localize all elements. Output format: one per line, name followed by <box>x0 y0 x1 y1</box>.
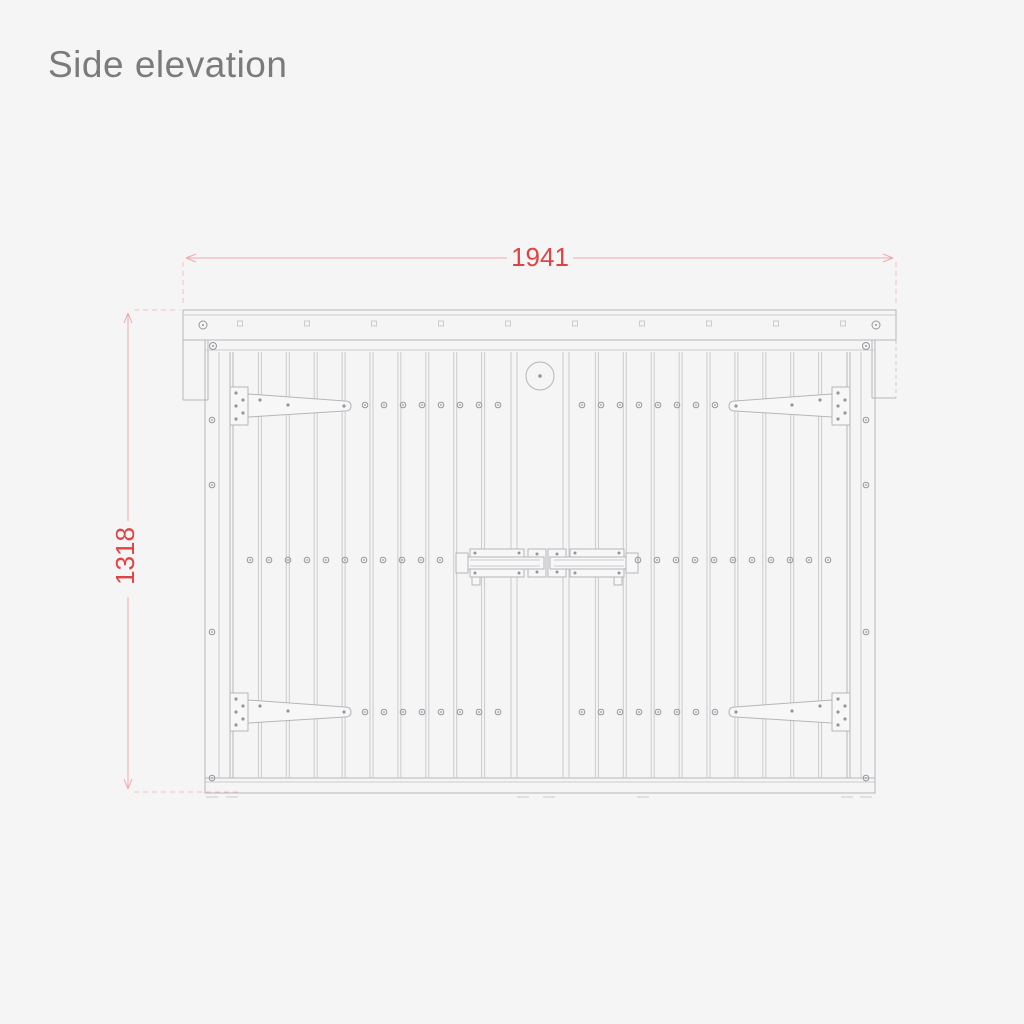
screw-dot <box>556 553 559 556</box>
hinge-strap <box>248 700 351 723</box>
screw-dot <box>714 711 716 713</box>
screw-dot <box>364 404 366 406</box>
screw-dot <box>675 559 677 561</box>
screw-dot <box>211 419 213 421</box>
screw-dot <box>618 552 621 555</box>
screw-dot <box>478 404 480 406</box>
screw-dot <box>211 631 213 633</box>
dim-arrow <box>124 313 128 323</box>
screw-dot <box>836 391 839 394</box>
screw-dot <box>258 398 261 401</box>
screw-dot <box>306 559 308 561</box>
dim-arrow <box>883 258 893 262</box>
screw-dot <box>818 398 821 401</box>
fascia-fixing <box>506 321 511 326</box>
latch-knob <box>456 553 468 573</box>
screw-dot <box>843 704 846 707</box>
screw-dot <box>657 404 659 406</box>
screw-dot <box>518 572 521 575</box>
screw-dot <box>732 559 734 561</box>
screw-dot <box>618 572 621 575</box>
dim-arrow <box>883 254 893 258</box>
screw-dot <box>790 709 793 712</box>
dim-arrow <box>128 313 132 323</box>
hinge-strap <box>248 394 351 417</box>
tee-hinge <box>230 693 351 731</box>
screw-dot <box>865 484 867 486</box>
screw-dot <box>241 704 244 707</box>
screw-dot <box>211 484 213 486</box>
screw-dot <box>342 404 345 407</box>
screw-dot <box>574 552 577 555</box>
screw-dot <box>713 559 715 561</box>
screw-dot <box>556 571 559 574</box>
hinge-plate <box>230 693 248 731</box>
screw-dot <box>497 711 499 713</box>
screw-dot <box>474 552 477 555</box>
fascia-fixing <box>707 321 712 326</box>
screw-dot <box>818 704 821 707</box>
screw-dot <box>734 710 737 713</box>
dim-arrow <box>186 258 196 262</box>
screw-dot <box>518 552 521 555</box>
screw-dot <box>619 404 621 406</box>
screw-dot <box>202 324 204 326</box>
screw-dot <box>600 711 602 713</box>
screw-dot <box>258 704 261 707</box>
screw-dot <box>843 398 846 401</box>
hinge-plate <box>832 387 850 425</box>
screw-dot <box>286 709 289 712</box>
screw-dot <box>234 417 237 420</box>
screw-dot <box>695 711 697 713</box>
screw-dot <box>234 697 237 700</box>
dim-arrow <box>128 779 132 789</box>
screw-dot <box>287 559 289 561</box>
screw-dot <box>808 559 810 561</box>
latch-handle <box>472 577 480 585</box>
screw-dot <box>234 723 237 726</box>
screw-dot <box>656 559 658 561</box>
screw-dot <box>843 411 846 414</box>
elevation-drawing: 1941 1318 <box>0 0 1024 1024</box>
hinge-strap <box>729 394 832 417</box>
screw-dot <box>474 572 477 575</box>
screw-dot <box>695 404 697 406</box>
screw-dot <box>211 777 213 779</box>
screw-dot <box>421 404 423 406</box>
screw-dot <box>402 404 404 406</box>
screw-dot <box>439 559 441 561</box>
screw-dot <box>789 559 791 561</box>
roof-fascia <box>183 310 896 400</box>
screw-dot <box>249 559 251 561</box>
dim-arrow <box>124 779 128 789</box>
fascia-fixing <box>439 321 444 326</box>
screw-dot <box>770 559 772 561</box>
screw-dot <box>241 398 244 401</box>
latch-knob <box>626 553 638 573</box>
screw-dot <box>875 324 877 326</box>
screw-dot <box>836 404 839 407</box>
screw-dot <box>383 404 385 406</box>
latch-bolt <box>461 557 544 569</box>
screw-dot <box>790 403 793 406</box>
screw-dot <box>325 559 327 561</box>
vent-centre-dot <box>538 374 542 378</box>
fascia-fixing <box>841 321 846 326</box>
screw-dot <box>286 403 289 406</box>
screw-dot <box>459 711 461 713</box>
screw-dot <box>865 777 867 779</box>
screw-dot <box>827 559 829 561</box>
fascia-fixing <box>305 321 310 326</box>
screw-dot <box>865 631 867 633</box>
screw-dot <box>459 404 461 406</box>
screw-dot <box>581 711 583 713</box>
screw-dot <box>619 711 621 713</box>
screw-dot <box>694 559 696 561</box>
screw-dot <box>536 553 539 556</box>
screw-dot <box>440 404 442 406</box>
fascia-fixing <box>372 321 377 326</box>
screw-dot <box>401 559 403 561</box>
screw-dot <box>638 711 640 713</box>
screw-dot <box>364 711 366 713</box>
screw-dot <box>497 404 499 406</box>
screw-dot <box>865 419 867 421</box>
barrel-bolt-latch <box>548 549 638 585</box>
screw-dot <box>241 411 244 414</box>
screw-dot <box>234 404 237 407</box>
screw-dot <box>637 559 639 561</box>
height-dimension-label: 1318 <box>110 527 140 585</box>
fascia-fixing <box>640 321 645 326</box>
screw-dot <box>843 717 846 720</box>
screw-dot <box>363 559 365 561</box>
screw-dot <box>382 559 384 561</box>
tee-hinge <box>230 387 351 425</box>
barrel-bolt-latch <box>456 549 546 585</box>
screw-dot <box>268 559 270 561</box>
screw-dot <box>342 710 345 713</box>
hinge-plate <box>230 387 248 425</box>
page: { "title": "Side elevation", "dimensions… <box>0 0 1024 1024</box>
tee-hinge <box>729 693 850 731</box>
screw-dot <box>440 711 442 713</box>
screw-dot <box>836 697 839 700</box>
screw-dot <box>574 572 577 575</box>
screw-dot <box>421 711 423 713</box>
screw-dot <box>657 711 659 713</box>
screw-dot <box>751 559 753 561</box>
screw-dot <box>600 404 602 406</box>
latch-handle <box>614 577 622 585</box>
screw-dot <box>714 404 716 406</box>
screw-dot <box>234 391 237 394</box>
fascia-fixing <box>774 321 779 326</box>
hinge-strap <box>729 700 832 723</box>
fascia-fixing <box>238 321 243 326</box>
screw-dot <box>234 710 237 713</box>
dim-arrow <box>186 254 196 258</box>
screw-dot <box>344 559 346 561</box>
screw-dot <box>676 404 678 406</box>
screw-dot <box>638 404 640 406</box>
screw-dot <box>402 711 404 713</box>
screw-dot <box>836 723 839 726</box>
width-dimension-label: 1941 <box>511 242 569 272</box>
tee-hinge <box>729 387 850 425</box>
screw-dot <box>383 711 385 713</box>
fascia-fixing <box>573 321 578 326</box>
screw-dot <box>865 345 867 347</box>
screw-dot <box>836 417 839 420</box>
screw-dot <box>734 404 737 407</box>
hinge-plate <box>832 693 850 731</box>
screw-dot <box>676 711 678 713</box>
screw-dot <box>241 717 244 720</box>
screw-dot <box>212 345 214 347</box>
screw-dot <box>836 710 839 713</box>
latch-bolt <box>550 557 633 569</box>
screw-dot <box>420 559 422 561</box>
screw-dot <box>536 571 539 574</box>
screw-dot <box>581 404 583 406</box>
screw-dot <box>478 711 480 713</box>
